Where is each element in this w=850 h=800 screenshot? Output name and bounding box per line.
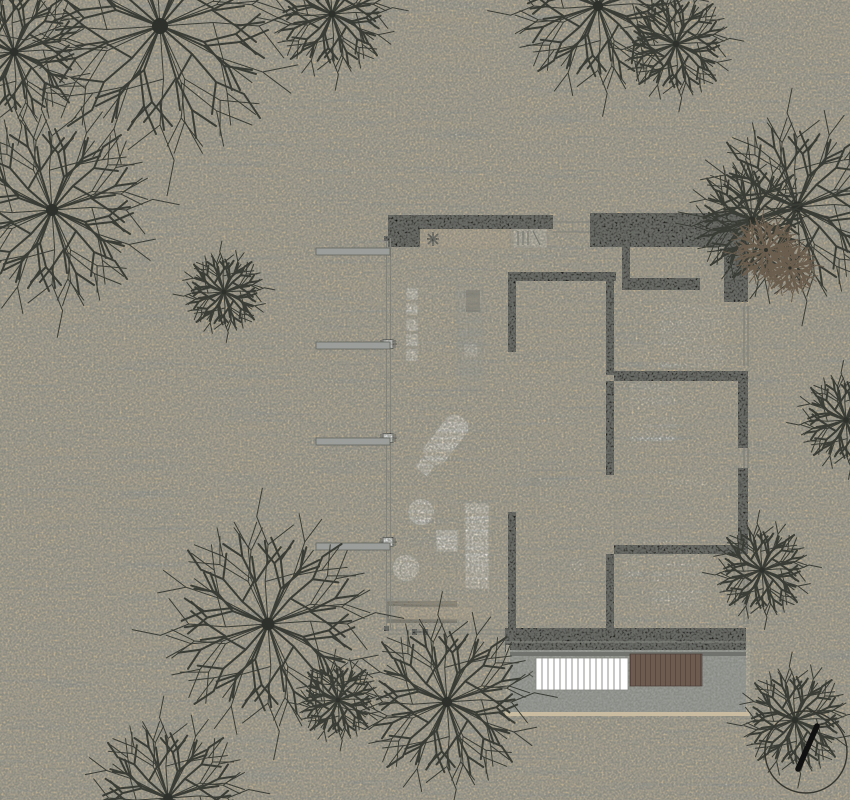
- house: [379, 213, 755, 652]
- kitchen-sink: [464, 344, 478, 358]
- dining-table: [420, 284, 445, 366]
- toilet-icon: [579, 505, 593, 527]
- cooktop: [466, 290, 480, 312]
- terrace: [504, 642, 752, 718]
- entry-hall: [420, 228, 547, 248]
- sink: [588, 280, 604, 295]
- bed: [652, 554, 704, 610]
- exterior-stairs: [529, 658, 628, 690]
- nightstand: [624, 556, 642, 578]
- parking-area: [366, 40, 549, 226]
- nightstand: [634, 344, 650, 360]
- sofa: [465, 503, 489, 589]
- desk-chair: [688, 402, 702, 415]
- toilet-icon: [571, 555, 585, 577]
- car-icon: [418, 59, 538, 117]
- cellar-stair: [700, 248, 724, 288]
- sink: [572, 582, 592, 595]
- site-plan-drawing: [0, 0, 850, 800]
- desk: [676, 384, 740, 402]
- toilet-icon: [551, 283, 565, 305]
- wood-deck: [630, 654, 702, 686]
- plant-icon: [427, 232, 439, 246]
- wardrobe: [580, 374, 610, 396]
- bath-bench: [530, 332, 594, 346]
- bed: [660, 304, 724, 368]
- car-icon: [416, 129, 536, 187]
- coffee-table: [436, 530, 458, 552]
- dining-chair: [406, 288, 418, 361]
- sink: [539, 492, 550, 507]
- stone-wall: [66, 358, 310, 381]
- site-plan-canvas: [0, 0, 850, 800]
- bedroom-north: [634, 302, 724, 370]
- bathroom-north: [520, 272, 616, 354]
- shower: [556, 420, 574, 440]
